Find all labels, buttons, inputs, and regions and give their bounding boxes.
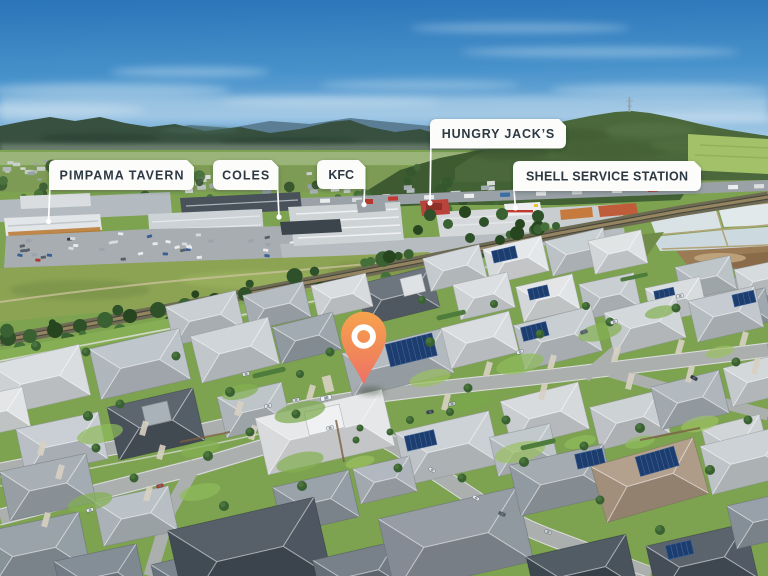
svg-text:HUNGRY JACK’S: HUNGRY JACK’S: [442, 127, 555, 141]
svg-text:COLES: COLES: [222, 168, 270, 182]
svg-text:SHELL SERVICE STATION: SHELL SERVICE STATION: [526, 169, 689, 183]
svg-text:KFC: KFC: [328, 168, 354, 182]
svg-text:PIMPAMA TAVERN: PIMPAMA TAVERN: [59, 168, 184, 182]
